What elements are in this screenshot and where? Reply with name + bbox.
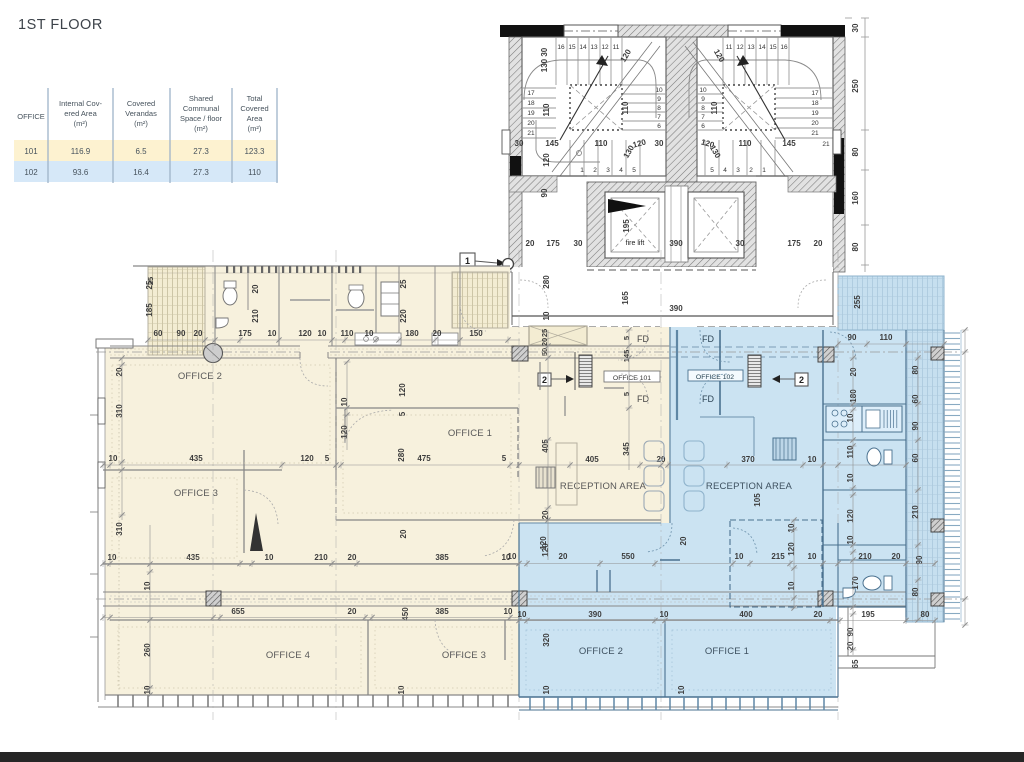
svg-text:20: 20 bbox=[814, 239, 823, 248]
svg-text:Internal Cov-: Internal Cov- bbox=[59, 99, 102, 108]
svg-text:14: 14 bbox=[579, 44, 587, 51]
svg-text:4: 4 bbox=[723, 167, 727, 174]
svg-text:120: 120 bbox=[300, 454, 314, 463]
svg-text:435: 435 bbox=[186, 553, 200, 562]
svg-text:8: 8 bbox=[701, 105, 705, 112]
svg-text:30: 30 bbox=[851, 23, 860, 32]
svg-text:1: 1 bbox=[580, 167, 584, 174]
svg-text:280: 280 bbox=[542, 275, 551, 289]
svg-text:120: 120 bbox=[398, 383, 407, 397]
svg-text:10: 10 bbox=[735, 552, 744, 561]
svg-text:310: 310 bbox=[115, 522, 124, 536]
svg-text:10: 10 bbox=[660, 610, 669, 619]
svg-text:195: 195 bbox=[622, 219, 631, 233]
svg-text:OFFICE: OFFICE bbox=[17, 112, 45, 121]
svg-text:3: 3 bbox=[736, 167, 740, 174]
svg-text:110: 110 bbox=[542, 103, 551, 116]
svg-text:10: 10 bbox=[846, 535, 855, 544]
svg-text:11: 11 bbox=[726, 44, 733, 51]
svg-text:18: 18 bbox=[527, 100, 535, 107]
svg-text:220: 220 bbox=[399, 309, 408, 323]
svg-text:102: 102 bbox=[24, 168, 38, 177]
svg-text:6: 6 bbox=[657, 123, 661, 130]
svg-text:10: 10 bbox=[655, 87, 663, 94]
svg-text:390: 390 bbox=[669, 304, 683, 313]
svg-text:210: 210 bbox=[314, 553, 328, 562]
svg-text:16: 16 bbox=[780, 44, 788, 51]
svg-text:17: 17 bbox=[527, 90, 535, 97]
svg-text:101: 101 bbox=[24, 147, 38, 156]
svg-text:80: 80 bbox=[851, 242, 860, 251]
svg-text:20: 20 bbox=[348, 553, 357, 562]
svg-text:5: 5 bbox=[398, 411, 407, 416]
svg-text:180: 180 bbox=[849, 389, 858, 403]
svg-text:27.3: 27.3 bbox=[193, 168, 209, 177]
svg-text:310: 310 bbox=[115, 404, 124, 418]
svg-text:215: 215 bbox=[771, 552, 785, 561]
svg-text:25: 25 bbox=[540, 329, 549, 337]
svg-text:25: 25 bbox=[399, 279, 408, 288]
svg-text:12: 12 bbox=[601, 44, 609, 51]
svg-text:10: 10 bbox=[808, 552, 817, 561]
svg-text:20: 20 bbox=[559, 552, 568, 561]
svg-text:Space / floor: Space / floor bbox=[180, 114, 223, 123]
svg-text:180: 180 bbox=[405, 329, 419, 338]
svg-text:10: 10 bbox=[508, 552, 517, 561]
svg-text:20: 20 bbox=[348, 607, 357, 616]
svg-text:20: 20 bbox=[433, 329, 442, 338]
svg-text:25: 25 bbox=[146, 277, 155, 285]
svg-text:110: 110 bbox=[880, 333, 893, 342]
svg-text:10: 10 bbox=[787, 581, 796, 590]
svg-text:90: 90 bbox=[846, 627, 855, 636]
svg-text:110: 110 bbox=[341, 329, 354, 338]
svg-text:195: 195 bbox=[861, 610, 875, 619]
svg-text:145: 145 bbox=[545, 139, 559, 148]
svg-text:6.5: 6.5 bbox=[135, 147, 147, 156]
svg-text:175: 175 bbox=[787, 239, 801, 248]
svg-text:120: 120 bbox=[539, 536, 548, 550]
svg-text:Verandas: Verandas bbox=[125, 109, 157, 118]
svg-text:280: 280 bbox=[397, 448, 406, 462]
svg-text:60: 60 bbox=[154, 329, 163, 338]
svg-text:1: 1 bbox=[762, 167, 766, 174]
svg-text:10: 10 bbox=[542, 685, 551, 694]
svg-text:10: 10 bbox=[397, 685, 406, 694]
svg-text:20: 20 bbox=[849, 367, 858, 376]
svg-text:20: 20 bbox=[194, 329, 203, 338]
svg-text:10: 10 bbox=[846, 413, 855, 422]
svg-text:345: 345 bbox=[622, 442, 631, 456]
svg-text:20: 20 bbox=[541, 510, 550, 519]
svg-text:11: 11 bbox=[613, 44, 620, 51]
svg-text:13: 13 bbox=[590, 44, 598, 51]
svg-text:14: 14 bbox=[758, 44, 766, 51]
svg-text:10: 10 bbox=[846, 473, 855, 482]
svg-text:250: 250 bbox=[851, 79, 860, 93]
svg-text:120: 120 bbox=[787, 542, 796, 556]
svg-text:10: 10 bbox=[677, 685, 686, 694]
svg-text:80: 80 bbox=[911, 365, 920, 374]
svg-text:110: 110 bbox=[739, 139, 752, 148]
svg-text:17: 17 bbox=[811, 90, 819, 97]
svg-text:390: 390 bbox=[588, 610, 602, 619]
svg-text:20: 20 bbox=[814, 610, 823, 619]
svg-text:10: 10 bbox=[265, 553, 274, 562]
svg-text:10: 10 bbox=[787, 523, 796, 532]
svg-text:2: 2 bbox=[749, 167, 753, 174]
svg-text:210: 210 bbox=[911, 505, 920, 519]
svg-text:6: 6 bbox=[701, 123, 705, 130]
svg-text:(m²): (m²) bbox=[74, 119, 88, 128]
svg-text:1: 1 bbox=[465, 256, 470, 266]
svg-text:8: 8 bbox=[657, 105, 661, 112]
svg-text:370: 370 bbox=[741, 455, 755, 464]
svg-text:Area: Area bbox=[247, 114, 264, 123]
svg-text:16: 16 bbox=[557, 44, 565, 51]
svg-text:80: 80 bbox=[921, 610, 930, 619]
svg-text:10: 10 bbox=[808, 455, 817, 464]
svg-text:Communal: Communal bbox=[183, 104, 220, 113]
svg-text:5: 5 bbox=[622, 392, 631, 396]
svg-text:20: 20 bbox=[540, 338, 549, 346]
svg-text:390: 390 bbox=[669, 239, 683, 248]
svg-text:21: 21 bbox=[527, 130, 535, 137]
svg-text:20: 20 bbox=[679, 536, 688, 545]
svg-text:20: 20 bbox=[251, 284, 260, 293]
svg-text:19: 19 bbox=[527, 110, 535, 117]
svg-text:116.9: 116.9 bbox=[71, 147, 91, 156]
svg-text:10: 10 bbox=[699, 87, 707, 94]
svg-text:255: 255 bbox=[853, 295, 862, 309]
svg-text:475: 475 bbox=[417, 454, 431, 463]
svg-text:60: 60 bbox=[911, 394, 920, 403]
svg-text:10: 10 bbox=[143, 581, 152, 590]
svg-text:20: 20 bbox=[399, 529, 408, 538]
svg-text:10: 10 bbox=[318, 329, 327, 338]
svg-text:10: 10 bbox=[340, 397, 349, 406]
svg-text:30: 30 bbox=[736, 239, 745, 248]
svg-text:110: 110 bbox=[248, 168, 261, 177]
svg-text:110: 110 bbox=[621, 101, 630, 114]
svg-text:OFFICE 101: OFFICE 101 bbox=[613, 375, 651, 382]
svg-text:1ST FLOOR: 1ST FLOOR bbox=[18, 17, 103, 33]
svg-text:110: 110 bbox=[710, 101, 719, 114]
svg-text:OFFICE 1: OFFICE 1 bbox=[705, 646, 749, 657]
svg-text:105: 105 bbox=[753, 493, 762, 507]
svg-text:OFFICE 2: OFFICE 2 bbox=[178, 371, 222, 382]
svg-text:2: 2 bbox=[593, 167, 597, 174]
svg-text:120: 120 bbox=[542, 153, 551, 167]
svg-text:OFFICE 3: OFFICE 3 bbox=[442, 650, 486, 661]
svg-text:175: 175 bbox=[238, 329, 252, 338]
svg-text:20: 20 bbox=[115, 367, 124, 376]
svg-text:145: 145 bbox=[782, 139, 796, 148]
svg-text:123.3: 123.3 bbox=[244, 147, 265, 156]
svg-text:175: 175 bbox=[546, 239, 560, 248]
svg-text:550: 550 bbox=[621, 552, 635, 561]
svg-text:fire lift: fire lift bbox=[626, 240, 645, 247]
svg-text:165: 165 bbox=[621, 291, 630, 305]
svg-text:ered Area: ered Area bbox=[64, 109, 97, 118]
svg-text:OFFICE 3: OFFICE 3 bbox=[174, 488, 218, 499]
svg-text:120: 120 bbox=[846, 509, 855, 523]
svg-text:4: 4 bbox=[619, 167, 623, 174]
svg-text:400: 400 bbox=[739, 610, 753, 619]
svg-text:(m²): (m²) bbox=[194, 124, 208, 133]
svg-text:19: 19 bbox=[811, 110, 819, 117]
svg-text:FD: FD bbox=[702, 394, 714, 404]
svg-text:30: 30 bbox=[655, 139, 664, 148]
svg-text:20: 20 bbox=[811, 120, 819, 127]
svg-text:110: 110 bbox=[846, 445, 855, 458]
svg-text:2: 2 bbox=[542, 375, 547, 385]
svg-text:130 30: 130 30 bbox=[540, 47, 549, 72]
svg-text:9: 9 bbox=[657, 96, 661, 103]
svg-text:7: 7 bbox=[701, 114, 705, 121]
svg-text:12: 12 bbox=[736, 44, 744, 51]
svg-text:21: 21 bbox=[822, 141, 830, 148]
svg-text:RECEPTION AREA: RECEPTION AREA bbox=[560, 481, 647, 492]
svg-text:90: 90 bbox=[848, 333, 857, 342]
svg-text:OFFICE 102: OFFICE 102 bbox=[696, 374, 734, 381]
svg-text:3: 3 bbox=[606, 167, 610, 174]
svg-text:10: 10 bbox=[143, 685, 152, 694]
svg-text:2: 2 bbox=[799, 375, 804, 385]
svg-text:120: 120 bbox=[298, 329, 312, 338]
svg-text:405: 405 bbox=[541, 439, 550, 453]
svg-text:450: 450 bbox=[401, 607, 410, 621]
svg-text:5: 5 bbox=[502, 454, 507, 463]
svg-text:Total: Total bbox=[247, 94, 263, 103]
svg-text:385: 385 bbox=[435, 607, 449, 616]
svg-text:5: 5 bbox=[622, 336, 631, 340]
svg-text:RECEPTION AREA: RECEPTION AREA bbox=[706, 481, 793, 492]
svg-text:5: 5 bbox=[325, 454, 330, 463]
svg-text:80: 80 bbox=[911, 587, 920, 596]
svg-text:15: 15 bbox=[568, 44, 576, 51]
svg-text:5: 5 bbox=[710, 167, 714, 174]
svg-text:170: 170 bbox=[851, 576, 860, 590]
svg-text:18: 18 bbox=[811, 100, 819, 107]
svg-text:150: 150 bbox=[469, 329, 483, 338]
svg-text:OFFICE 1: OFFICE 1 bbox=[448, 428, 492, 439]
svg-text:Covered: Covered bbox=[240, 104, 268, 113]
svg-text:260: 260 bbox=[143, 643, 152, 657]
svg-text:30: 30 bbox=[515, 139, 524, 148]
svg-text:20: 20 bbox=[657, 455, 666, 464]
svg-text:27.3: 27.3 bbox=[193, 147, 209, 156]
svg-text:90: 90 bbox=[915, 555, 924, 564]
svg-text:320: 320 bbox=[542, 633, 551, 647]
svg-text:(m²): (m²) bbox=[134, 119, 148, 128]
svg-text:OFFICE 4: OFFICE 4 bbox=[266, 650, 310, 661]
svg-text:65: 65 bbox=[851, 659, 860, 668]
svg-text:90: 90 bbox=[540, 188, 549, 197]
svg-text:120: 120 bbox=[340, 425, 349, 439]
svg-text:7: 7 bbox=[657, 114, 661, 121]
svg-text:160: 160 bbox=[851, 191, 860, 205]
svg-text:30: 30 bbox=[574, 239, 583, 248]
svg-text:60: 60 bbox=[911, 453, 920, 462]
svg-text:15: 15 bbox=[769, 44, 777, 51]
svg-text:21: 21 bbox=[811, 130, 819, 137]
svg-text:90: 90 bbox=[177, 329, 186, 338]
svg-text:93.6: 93.6 bbox=[73, 168, 89, 177]
svg-text:20: 20 bbox=[526, 239, 535, 248]
svg-text:10: 10 bbox=[365, 329, 374, 338]
svg-text:210: 210 bbox=[251, 309, 260, 323]
svg-text:10: 10 bbox=[504, 607, 513, 616]
svg-text:16.4: 16.4 bbox=[133, 168, 149, 177]
svg-text:385: 385 bbox=[435, 553, 449, 562]
svg-text:10: 10 bbox=[268, 329, 277, 338]
svg-text:Shared: Shared bbox=[189, 94, 213, 103]
svg-text:FD: FD bbox=[702, 334, 714, 344]
svg-text:5: 5 bbox=[632, 167, 636, 174]
svg-text:9: 9 bbox=[701, 96, 705, 103]
svg-text:110: 110 bbox=[595, 139, 608, 148]
svg-text:20: 20 bbox=[527, 120, 535, 127]
svg-text:(m²): (m²) bbox=[248, 124, 262, 133]
svg-text:90: 90 bbox=[911, 421, 920, 430]
svg-text:OFFICE 2: OFFICE 2 bbox=[579, 646, 623, 657]
svg-text:185: 185 bbox=[145, 303, 154, 317]
svg-text:655: 655 bbox=[231, 607, 245, 616]
svg-text:435: 435 bbox=[189, 454, 203, 463]
svg-text:13: 13 bbox=[747, 44, 755, 51]
svg-text:Covered: Covered bbox=[127, 99, 155, 108]
svg-text:405: 405 bbox=[585, 455, 599, 464]
svg-text:80: 80 bbox=[851, 147, 860, 156]
